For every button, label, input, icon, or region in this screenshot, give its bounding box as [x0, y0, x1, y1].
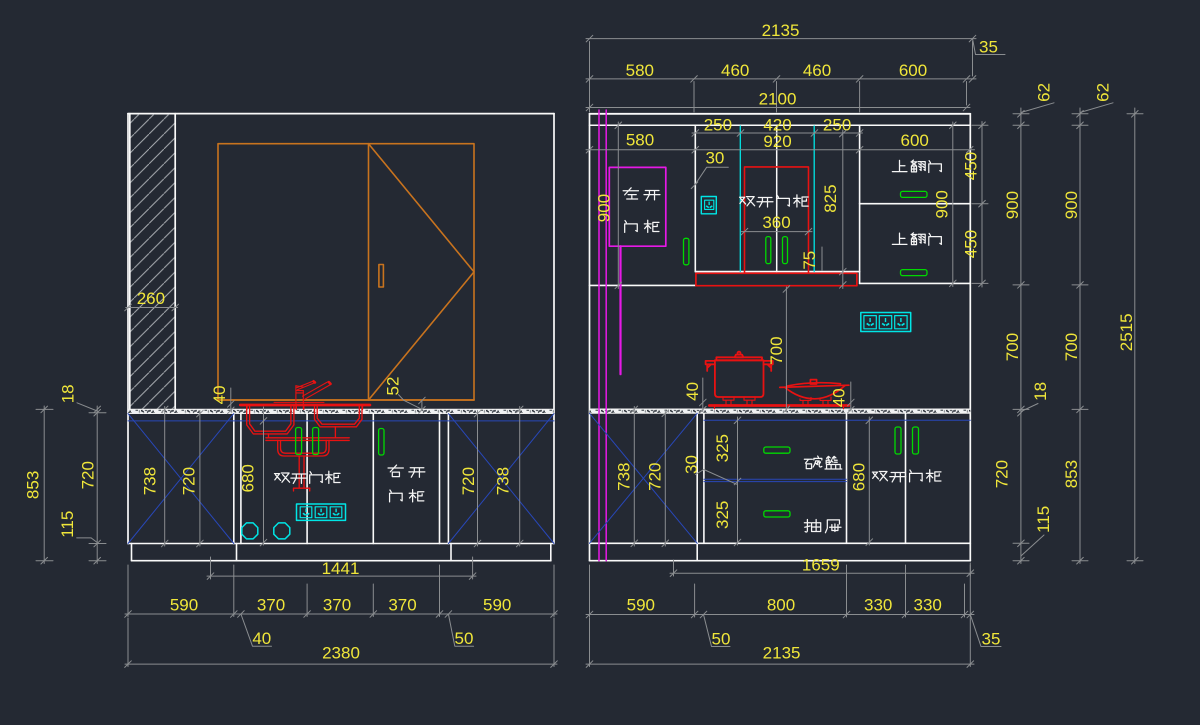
svg-text:738: 738	[615, 463, 634, 491]
svg-text:900: 900	[595, 194, 614, 222]
svg-text:30: 30	[705, 149, 724, 168]
svg-text:580: 580	[626, 131, 654, 150]
svg-text:35: 35	[982, 630, 1001, 649]
svg-text:30: 30	[682, 455, 701, 474]
svg-text:40: 40	[683, 382, 702, 401]
svg-text:720: 720	[992, 460, 1011, 488]
svg-text:600: 600	[899, 61, 927, 80]
svg-text:50: 50	[455, 629, 474, 648]
svg-text:450: 450	[961, 152, 980, 180]
svg-text:40: 40	[830, 388, 849, 407]
svg-text:62: 62	[1094, 83, 1113, 102]
svg-text:325: 325	[713, 501, 732, 529]
svg-text:62: 62	[1035, 83, 1054, 102]
svg-text:720: 720	[646, 463, 665, 491]
svg-text:370: 370	[323, 596, 351, 615]
svg-text:700: 700	[1062, 333, 1081, 361]
svg-text:1659: 1659	[802, 556, 840, 575]
svg-text:18: 18	[1031, 382, 1050, 401]
svg-text:680: 680	[849, 463, 868, 491]
svg-text:2380: 2380	[322, 644, 360, 663]
svg-text:600: 600	[901, 131, 929, 150]
svg-text:460: 460	[721, 61, 749, 80]
svg-text:50: 50	[712, 630, 731, 649]
svg-text:2100: 2100	[759, 90, 797, 109]
svg-text:738: 738	[494, 467, 513, 495]
svg-text:900: 900	[932, 190, 951, 218]
svg-text:825: 825	[821, 184, 840, 212]
svg-text:580: 580	[626, 61, 654, 80]
svg-text:590: 590	[170, 596, 198, 615]
svg-text:720: 720	[459, 467, 478, 495]
svg-text:370: 370	[388, 596, 416, 615]
svg-text:2135: 2135	[763, 644, 801, 663]
svg-text:18: 18	[59, 384, 78, 403]
svg-text:250: 250	[704, 116, 732, 135]
svg-text:330: 330	[864, 596, 892, 615]
svg-text:40: 40	[210, 385, 229, 404]
svg-text:853: 853	[1062, 460, 1081, 488]
svg-text:680: 680	[238, 464, 257, 492]
svg-text:370: 370	[257, 596, 285, 615]
svg-text:900: 900	[1062, 191, 1081, 219]
svg-text:590: 590	[483, 596, 511, 615]
svg-text:460: 460	[803, 61, 831, 80]
svg-text:920: 920	[763, 132, 791, 151]
svg-text:2515: 2515	[1117, 313, 1136, 351]
svg-text:720: 720	[79, 461, 98, 489]
svg-text:2135: 2135	[762, 21, 800, 40]
svg-text:738: 738	[141, 467, 160, 495]
svg-text:260: 260	[137, 289, 165, 308]
svg-text:1441: 1441	[322, 559, 360, 578]
svg-text:115: 115	[58, 511, 77, 538]
svg-text:40: 40	[252, 629, 271, 648]
svg-text:700: 700	[1003, 333, 1022, 361]
svg-text:800: 800	[767, 596, 795, 615]
svg-text:700: 700	[767, 336, 786, 364]
svg-text:325: 325	[713, 434, 732, 462]
svg-text:853: 853	[24, 471, 43, 499]
svg-text:720: 720	[179, 467, 198, 495]
svg-text:330: 330	[914, 596, 942, 615]
svg-text:52: 52	[384, 377, 403, 396]
svg-text:360: 360	[762, 213, 790, 232]
svg-text:75: 75	[800, 251, 819, 270]
svg-text:35: 35	[979, 38, 998, 57]
svg-text:250: 250	[823, 116, 851, 135]
svg-text:590: 590	[627, 596, 655, 615]
svg-text:900: 900	[1003, 191, 1022, 219]
svg-text:450: 450	[961, 230, 980, 258]
svg-text:115: 115	[1034, 506, 1053, 533]
